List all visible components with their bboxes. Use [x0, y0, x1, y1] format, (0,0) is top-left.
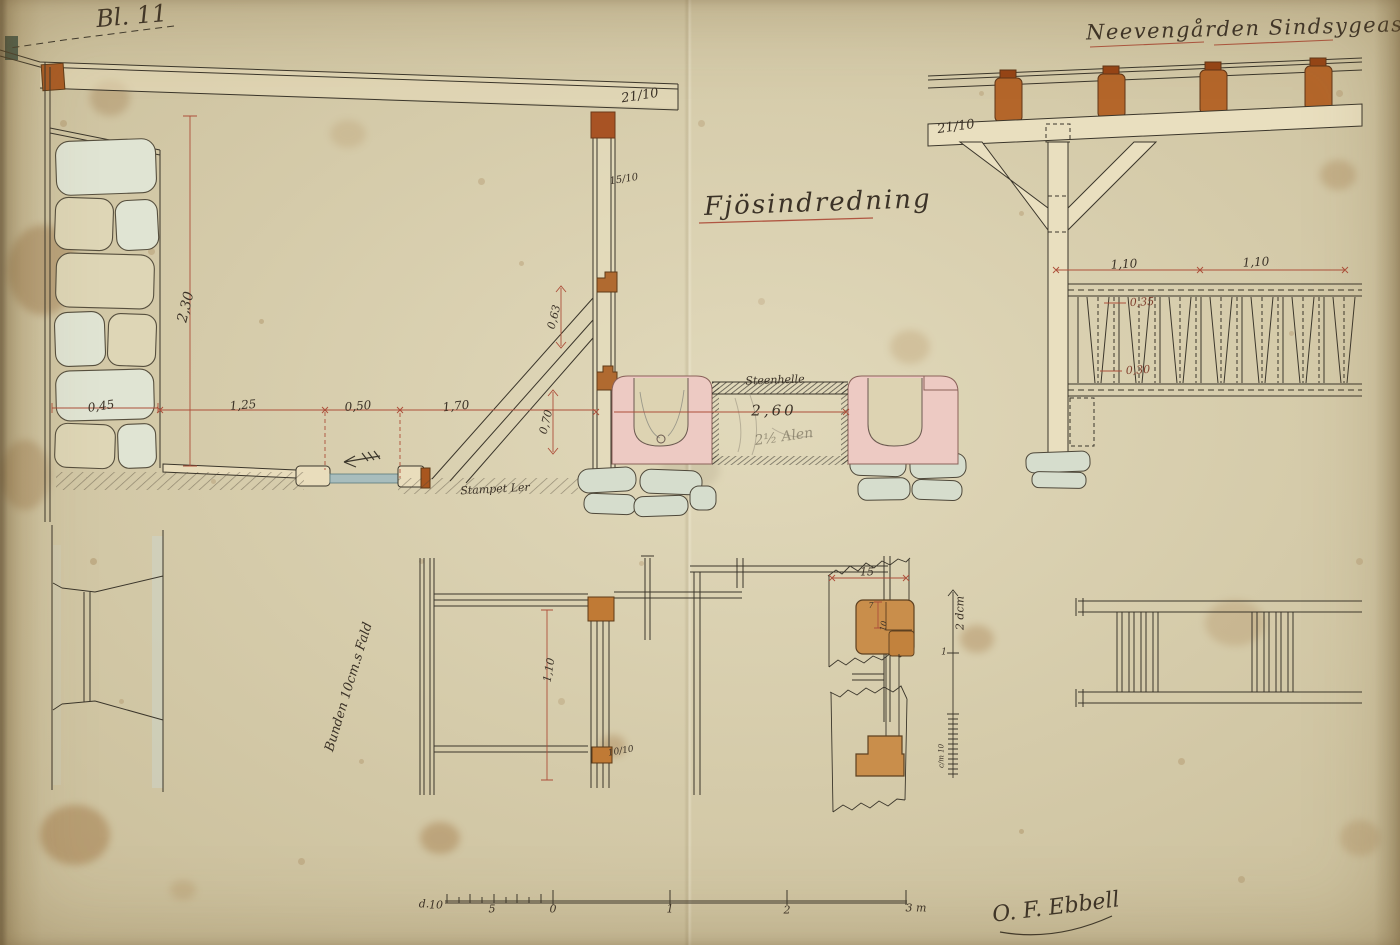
- drawing-linework: [0, 0, 1400, 945]
- front-beam: [928, 104, 1362, 146]
- flow-arrow: [344, 451, 380, 467]
- paper-right-edge: [1374, 0, 1400, 945]
- front-post: [1048, 142, 1068, 456]
- dcm-scale-label: 2 dcm: [955, 596, 966, 630]
- rack-bottom-dim: 0,30: [1125, 364, 1150, 376]
- span-right-dim: 1,70: [442, 399, 470, 414]
- drawing-title: Fjösindredning: [704, 186, 932, 220]
- rack-slats: [1078, 297, 1355, 383]
- detail-block-insert: [889, 631, 914, 656]
- paper-left-edge: [0, 0, 42, 945]
- wall-thickness-dim: 0,45: [87, 398, 115, 414]
- trough-right-bowl: [868, 378, 922, 446]
- rack-plan: [1076, 598, 1362, 707]
- roof-boards: [928, 58, 1362, 88]
- scale-bar-lines: [445, 890, 907, 905]
- rack-rails: [1068, 284, 1362, 396]
- front-post-base-stones: [1026, 451, 1091, 489]
- rack-top-dim: 0,35: [1129, 296, 1154, 308]
- dcm-scale-unit: c/m 10: [939, 744, 946, 768]
- drawing-sheet: Bl. 11 Neevengården Sindsygeasyl. Fjösin…: [0, 0, 1400, 945]
- rammed-clay-label: Stampet Ler: [460, 482, 530, 497]
- stone-slab-label: Steenhelle: [745, 373, 805, 386]
- front-view: [928, 58, 1362, 488]
- scale-bar-tick-3m: 3 m: [906, 903, 927, 914]
- span-mid-dim: 0,50: [344, 399, 372, 413]
- scale-bar-tick-1: 1: [667, 904, 674, 915]
- detail-notch-depth: 7: [868, 602, 873, 610]
- window-plan: [52, 525, 163, 792]
- scale-bar-tick-5: 5: [489, 904, 496, 915]
- stall-divider-slope: [432, 298, 593, 483]
- rack-plan-slats: [1117, 612, 1293, 692]
- span-left-dim: 1,25: [229, 398, 257, 412]
- ink-flourishes: [699, 40, 1333, 935]
- scale-bar-tick-10: 10: [429, 900, 443, 911]
- scale-bar-tick-0: 0: [550, 904, 557, 915]
- stall-width-dim: 2,60: [751, 404, 796, 419]
- stone-masonry: [54, 138, 159, 469]
- sheet-number: Bl. 11: [95, 1, 168, 31]
- brace-left: [960, 142, 1048, 230]
- post-head-timber: [591, 112, 615, 138]
- bay-left-dim: 1,10: [1110, 257, 1137, 270]
- plan-dimension: [541, 610, 553, 780]
- brace-right: [1068, 142, 1156, 230]
- gutter-channel: [330, 474, 398, 483]
- hidden-post-joint: [1070, 398, 1094, 446]
- scale-bar-prefix: d.: [419, 899, 430, 910]
- plan-view: [420, 556, 890, 795]
- joint-details: [828, 558, 959, 812]
- section-dimensions: [52, 116, 849, 478]
- plan-wall-lines: [420, 558, 434, 795]
- scale-bar-tick-2: 2: [784, 905, 791, 916]
- plan-post-top: [588, 597, 614, 621]
- bay-right-dim: 1,10: [1242, 255, 1269, 268]
- detail-block-lower: [856, 736, 904, 776]
- detail-width-dim: 15: [860, 567, 874, 578]
- post-foundation-stones: [577, 466, 716, 516]
- section-view: [0, 26, 966, 522]
- dcm-scale-mid-tick: 1: [941, 649, 947, 658]
